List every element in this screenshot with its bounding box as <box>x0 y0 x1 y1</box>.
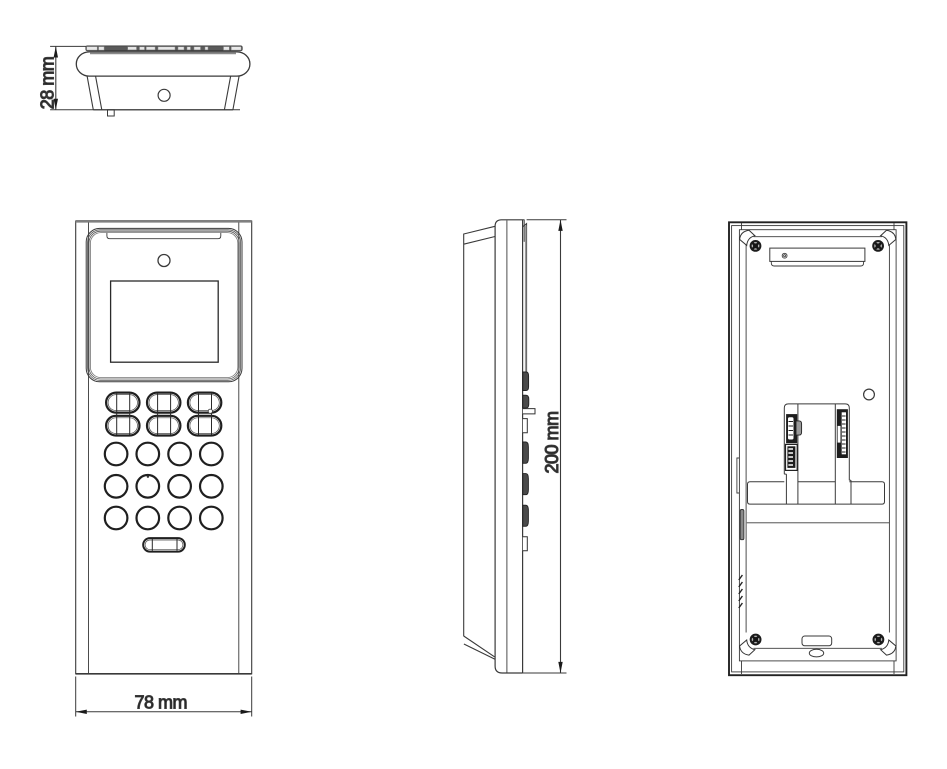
svg-text:78 mm: 78 mm <box>135 693 188 713</box>
svg-text:200 mm: 200 mm <box>542 411 562 473</box>
svg-text:28 mm: 28 mm <box>38 57 58 110</box>
